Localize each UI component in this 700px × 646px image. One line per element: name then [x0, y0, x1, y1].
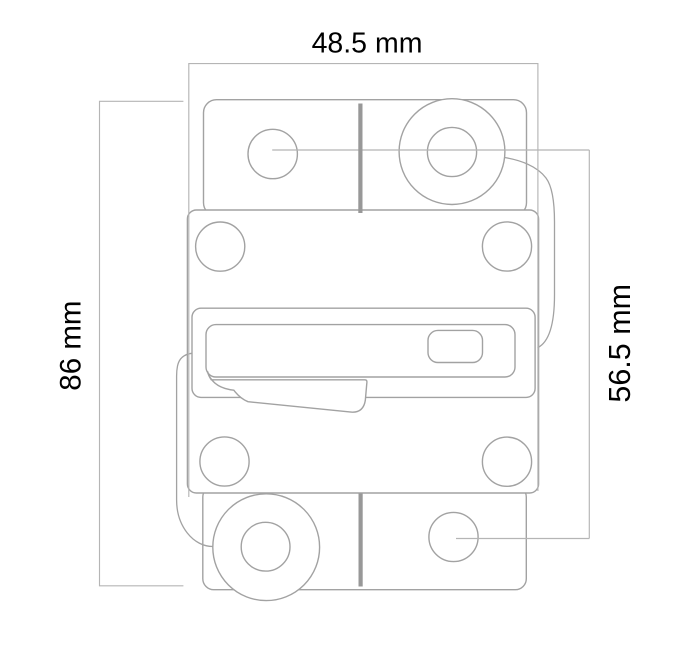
svg-text:48.5 mm: 48.5 mm: [312, 28, 423, 60]
svg-text:56.5 mm: 56.5 mm: [603, 284, 637, 403]
svg-text:86 mm: 86 mm: [55, 301, 88, 391]
